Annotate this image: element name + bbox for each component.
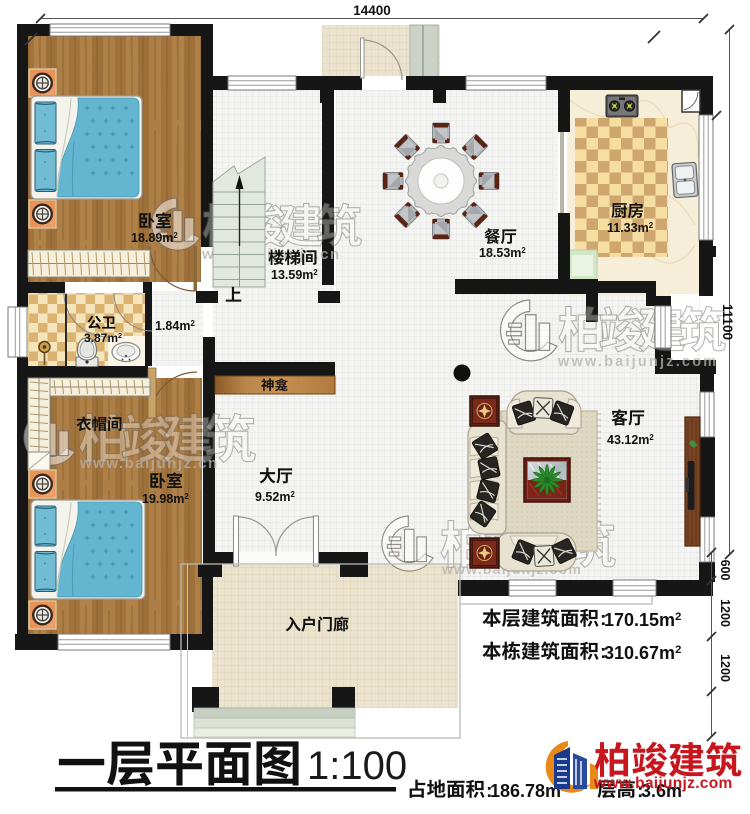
svg-text:1200: 1200 xyxy=(718,654,732,682)
svg-text:13.59m2: 13.59m2 xyxy=(271,268,318,282)
svg-text:1200: 1200 xyxy=(718,599,732,627)
svg-text:18.89m2: 18.89m2 xyxy=(131,231,178,245)
svg-text:600: 600 xyxy=(718,560,732,581)
svg-text:18.53m2: 18.53m2 xyxy=(479,246,526,260)
svg-text:43.12m2: 43.12m2 xyxy=(607,433,654,447)
svg-text:310.67m2: 310.67m2 xyxy=(604,643,681,663)
svg-text:www.baijunjz.com: www.baijunjz.com xyxy=(557,354,718,370)
svg-text:9.52m2: 9.52m2 xyxy=(255,490,295,504)
svg-text:14400: 14400 xyxy=(353,3,391,18)
svg-text:1:100: 1:100 xyxy=(307,744,407,788)
svg-text:170.15m2: 170.15m2 xyxy=(604,610,681,630)
svg-text:11.33m2: 11.33m2 xyxy=(607,221,654,235)
svg-text:3.87m2: 3.87m2 xyxy=(84,331,122,345)
svg-text:www.baijunjz.cn: www.baijunjz.cn xyxy=(79,455,219,472)
svg-text:www.baijunjz.com: www.baijunjz.com xyxy=(593,775,733,792)
svg-text:1.84m2: 1.84m2 xyxy=(155,319,195,333)
svg-text:19.98m2: 19.98m2 xyxy=(142,492,189,506)
svg-text:11100: 11100 xyxy=(720,304,735,340)
